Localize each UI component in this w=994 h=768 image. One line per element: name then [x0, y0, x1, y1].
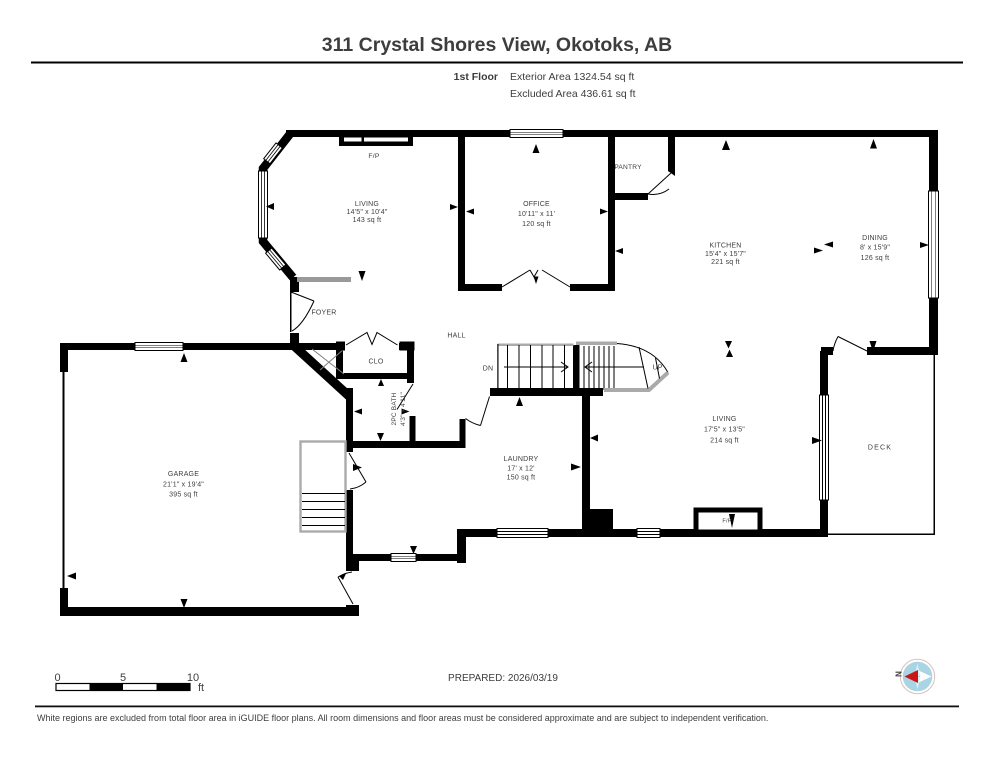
- svg-text:17' x 12': 17' x 12': [507, 465, 534, 472]
- svg-text:10'11" x 11': 10'11" x 11': [518, 211, 555, 218]
- svg-text:214 sq ft: 214 sq ft: [710, 438, 739, 445]
- svg-text:OFFICE: OFFICE: [523, 201, 550, 208]
- svg-text:17'5" x 13'5": 17'5" x 13'5": [704, 427, 745, 434]
- svg-text:LAUNDRY: LAUNDRY: [504, 456, 539, 463]
- svg-text:N: N: [894, 671, 903, 677]
- svg-text:8' x 15'9": 8' x 15'9": [860, 245, 890, 252]
- svg-text:4'3" x 4'11": 4'3" x 4'11": [400, 392, 407, 426]
- svg-text:F/P: F/P: [722, 519, 731, 525]
- svg-text:221 sq ft: 221 sq ft: [711, 259, 740, 266]
- svg-text:5: 5: [120, 672, 126, 684]
- svg-text:LIVING: LIVING: [712, 416, 736, 423]
- svg-text:120 sq ft: 120 sq ft: [522, 221, 551, 228]
- svg-text:FOYER: FOYER: [311, 310, 336, 317]
- svg-text:ft: ft: [198, 682, 204, 694]
- svg-text:HALL: HALL: [447, 333, 465, 340]
- svg-text:UP: UP: [652, 365, 662, 372]
- svg-text:F/P: F/P: [368, 153, 379, 160]
- svg-text:2PC BATH: 2PC BATH: [391, 392, 398, 425]
- svg-text:0: 0: [54, 672, 60, 684]
- svg-text:311 Crystal Shores View, Okoto: 311 Crystal Shores View, Okotoks, AB: [322, 34, 672, 56]
- svg-text:14'5" x 10'4": 14'5" x 10'4": [347, 209, 388, 216]
- svg-text:LIVING: LIVING: [355, 201, 379, 208]
- svg-text:DINING: DINING: [862, 235, 888, 242]
- svg-text:PANTRY: PANTRY: [614, 164, 642, 171]
- svg-text:White regions are excluded fro: White regions are excluded from total fl…: [37, 713, 768, 723]
- svg-text:15'4" x 15'7": 15'4" x 15'7": [705, 251, 746, 258]
- svg-text:143 sq ft: 143 sq ft: [353, 217, 382, 224]
- svg-text:150 sq ft: 150 sq ft: [507, 475, 536, 482]
- svg-text:DN: DN: [483, 366, 494, 373]
- svg-text:1st Floor: 1st Floor: [454, 71, 498, 83]
- svg-text:Exterior Area 1324.54 sq ft: Exterior Area 1324.54 sq ft: [510, 71, 634, 83]
- svg-text:KITCHEN: KITCHEN: [709, 243, 741, 250]
- svg-text:DECK: DECK: [868, 445, 892, 452]
- svg-text:395 sq ft: 395 sq ft: [169, 492, 198, 499]
- svg-text:126 sq ft: 126 sq ft: [861, 255, 890, 262]
- svg-text:GARAGE: GARAGE: [168, 471, 199, 478]
- svg-text:Excluded Area 436.61 sq ft: Excluded Area 436.61 sq ft: [510, 88, 636, 100]
- svg-text:CLO: CLO: [369, 359, 384, 366]
- svg-text:PREPARED: 2026/03/19: PREPARED: 2026/03/19: [448, 673, 558, 684]
- svg-text:21'1" x 19'4": 21'1" x 19'4": [163, 482, 204, 489]
